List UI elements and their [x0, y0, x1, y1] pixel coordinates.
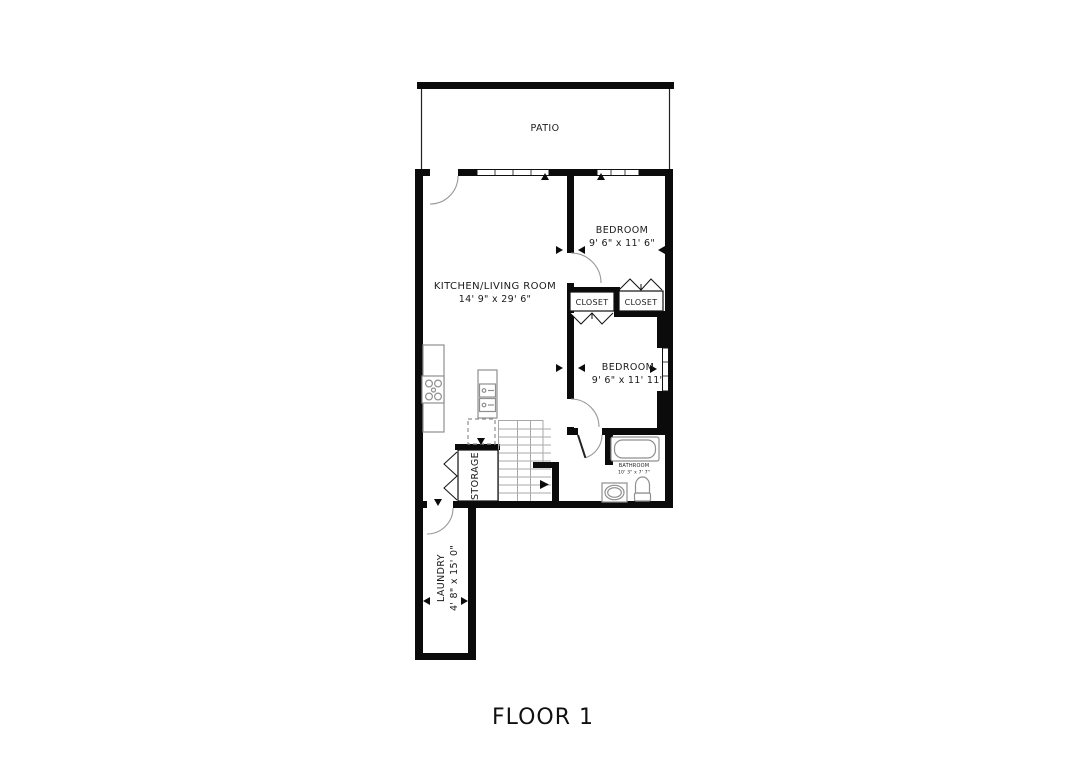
toilet-icon [635, 477, 651, 501]
right-pier-upper [657, 311, 673, 348]
storage-bifold-door [444, 452, 457, 500]
living-room-window [477, 170, 549, 176]
stair-right-wall [552, 462, 559, 508]
bedroom2-label: BEDROOM [602, 362, 654, 373]
patio-label: PATIO [531, 123, 560, 134]
stove-icon [422, 376, 444, 403]
stair-direction-arrow [540, 480, 549, 489]
bedroom1-window [597, 170, 639, 176]
laundry-bottom-wall [415, 653, 476, 660]
oven-column-icon [478, 370, 497, 418]
laundry-door-arc [427, 508, 453, 534]
kitchen-living-dims: 14' 9" x 29' 6" [459, 294, 531, 305]
patio-top-wall [417, 82, 674, 89]
bathroom-door-arc [585, 435, 602, 458]
top-wall-seg [458, 169, 477, 176]
laundry-label: LAUNDRY [436, 554, 447, 602]
closet-left-label: CLOSET [576, 298, 609, 307]
bathroom-label: BATHROOM [619, 463, 650, 469]
left-outer-wall [415, 169, 423, 660]
bath-top-wall [602, 428, 670, 435]
patio-area: PATIO [417, 82, 674, 169]
entry-door-arc [430, 176, 458, 204]
kitchen-living-label: KITCHEN/LIVING ROOM [434, 281, 556, 292]
kitchen-fixtures [422, 345, 497, 444]
divider-wall-seg [567, 176, 574, 253]
storage-label: STORAGE [470, 452, 481, 500]
storage-top-wall [455, 444, 500, 450]
bedroom1-door-arc [571, 253, 601, 283]
right-pier-lower [657, 391, 673, 428]
bedroom1-label: BEDROOM [596, 225, 648, 236]
floor-plan-page: PATIO [0, 0, 1086, 768]
bath-top-wall-seg [567, 428, 578, 435]
bathroom-dims: 10' 3" x 7' 7" [618, 470, 650, 476]
bottom-wall [453, 501, 673, 508]
floor-title: FLOOR 1 [492, 705, 594, 730]
bedroom1-dims: 9' 6" x 11' 6" [589, 238, 655, 249]
stairs [498, 420, 551, 501]
laundry-dims: 4' 8" x 15' 0" [449, 545, 460, 611]
closet-right-label: CLOSET [625, 298, 658, 307]
bathroom-door-leaf [578, 435, 585, 458]
laundry-right-wall [468, 508, 476, 660]
bedroom2-dims: 9' 6" x 11' 11" [592, 375, 664, 386]
bathtub-icon [611, 437, 659, 461]
bottom-wall-stub [423, 501, 427, 508]
bedroom2-door-arc [571, 399, 599, 427]
bathroom-fixtures [602, 437, 659, 502]
floor-plan-canvas: PATIO [0, 0, 1086, 768]
sink-icon [602, 483, 627, 502]
top-wall-seg [549, 169, 597, 176]
